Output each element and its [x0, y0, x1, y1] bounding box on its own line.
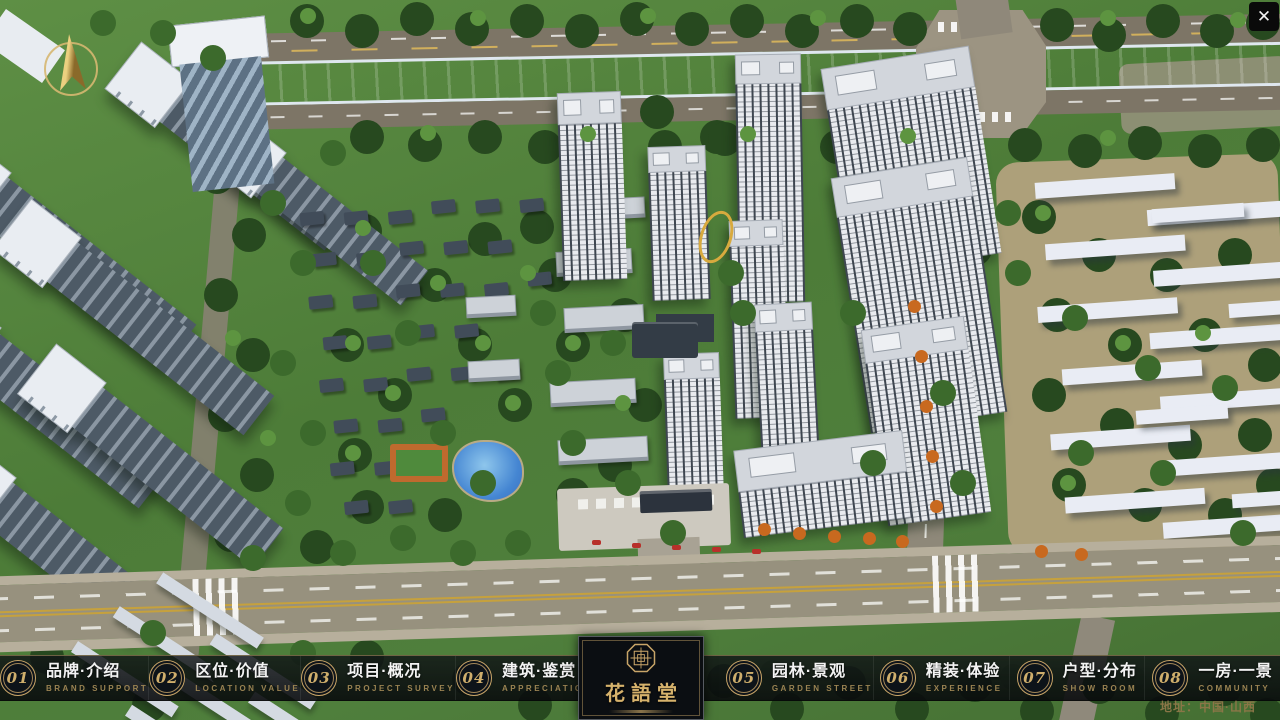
menu-subtitle: COMMUNITY	[1198, 684, 1272, 693]
menu-subtitle: GARDEN STREET	[772, 684, 873, 693]
compass-north-indicator	[38, 30, 104, 96]
tower-roof	[557, 91, 622, 125]
midrise-building	[467, 359, 520, 383]
midrise-building	[557, 436, 648, 466]
logo-caption-rule	[609, 710, 673, 713]
tower-facade	[558, 123, 627, 281]
close-button[interactable]: ✕	[1249, 2, 1279, 31]
menu-number-badge: 08	[1152, 660, 1188, 696]
menu-group-left: 01 品牌·介绍BRAND SUPPORT 02 区位·价值LOCATION V…	[0, 656, 592, 700]
menu-title: 园林·景观	[772, 663, 873, 681]
menu-item-architecture[interactable]: 04 建筑·鉴赏APPRECIATION	[455, 656, 592, 700]
menu-subtitle: PROJECT SURVEY	[347, 684, 455, 693]
sports-court	[390, 444, 448, 482]
car	[592, 540, 601, 545]
masterplan-viewport[interactable]	[0, 0, 1280, 720]
tower-roof	[647, 145, 706, 173]
menu-item-garden[interactable]: 05 园林·景观GARDEN STREET	[726, 656, 873, 700]
menu-title: 一房·一景	[1198, 663, 1272, 681]
entrance-gate	[640, 489, 713, 513]
menu-group-right: 05 园林·景观GARDEN STREET 06 精装·体验EXPERIENCE…	[726, 656, 1280, 700]
close-icon: ✕	[1257, 7, 1271, 26]
menu-title: 项目·概况	[347, 663, 455, 681]
car	[752, 549, 761, 554]
menu-number-badge: 04	[456, 660, 492, 696]
car	[632, 543, 641, 548]
menu-item-interior[interactable]: 06 精装·体验EXPERIENCE	[873, 656, 1009, 700]
menu-number-badge: 03	[301, 660, 337, 696]
menu-title: 户型·分布	[1063, 663, 1138, 681]
project-name: 花語堂	[599, 677, 683, 706]
pond	[452, 440, 524, 502]
menu-subtitle: SHOW ROOM	[1063, 684, 1138, 693]
presentation-window: ✕ 01 品牌·介绍BRAND SUPPORT 02 区位·价值LOCATION…	[0, 0, 1280, 720]
menu-item-views[interactable]: 08 一房·一景COMMUNITY	[1144, 656, 1280, 700]
menu-item-floorplan[interactable]: 07 户型·分布SHOW ROOM	[1009, 656, 1145, 700]
residential-tower	[557, 91, 628, 281]
menu-title: 品牌·介绍	[46, 663, 148, 681]
midrise-building	[465, 295, 516, 319]
clubhouse-pavilion	[632, 322, 698, 358]
residential-tower	[647, 145, 710, 301]
menu-item-project[interactable]: 03 项目·概况PROJECT SURVEY	[300, 656, 455, 700]
menu-number-badge: 07	[1017, 660, 1053, 696]
tower-roof	[754, 302, 813, 333]
menu-item-brand[interactable]: 01 品牌·介绍BRAND SUPPORT	[0, 656, 148, 700]
tower-roof	[735, 53, 802, 84]
tower-facade	[179, 56, 274, 192]
menu-title: 精装·体验	[926, 663, 1003, 681]
menu-subtitle: EXPERIENCE	[926, 684, 1003, 693]
car	[712, 547, 721, 552]
address-text: 地址：中国·山西	[1160, 698, 1256, 715]
menu-subtitle: LOCATION VALUE	[195, 684, 300, 693]
menu-number-badge: 01	[0, 660, 36, 696]
menu-subtitle: BRAND SUPPORT	[46, 684, 148, 693]
car	[672, 545, 681, 550]
project-logo-panel[interactable]: 花語堂	[578, 636, 704, 720]
crosswalk	[932, 554, 980, 612]
menu-title: 区位·价值	[195, 663, 300, 681]
seal-emblem-icon	[626, 643, 656, 673]
tree-cluster-autumn	[0, 0, 13, 13]
midrise-building	[549, 378, 636, 407]
tower-roof	[729, 219, 784, 247]
menu-item-location[interactable]: 02 区位·价值LOCATION VALUE	[148, 656, 300, 700]
courtyard-houses	[299, 211, 324, 226]
city-tower	[167, 15, 284, 197]
menu-number-badge: 05	[726, 660, 762, 696]
menu-number-badge: 02	[149, 660, 185, 696]
menu-number-badge: 06	[880, 660, 916, 696]
